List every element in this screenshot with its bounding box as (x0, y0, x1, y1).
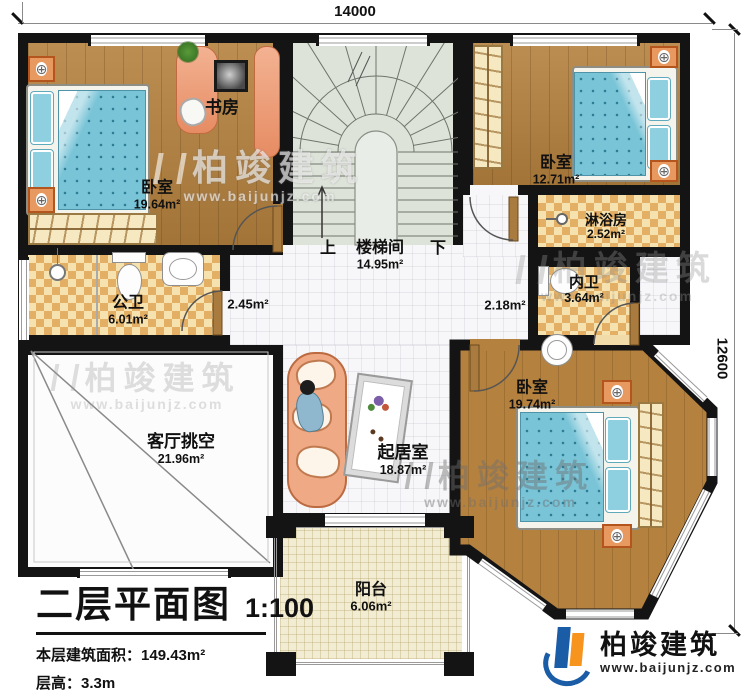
pillow (31, 92, 53, 144)
pillow (606, 418, 630, 462)
room-area: 18.87m² (378, 463, 429, 477)
room-name: 书房 (205, 98, 239, 118)
room-area: 2.52m² (585, 228, 627, 242)
room-label-inner-bath: 内卫3.64m² (564, 274, 604, 306)
room-label-stair-down: 下 (430, 240, 446, 258)
room-area: 3.64m² (564, 291, 604, 305)
room-label-public-bath: 公卫6.01m² (108, 295, 148, 328)
dimension-line-top (18, 23, 712, 24)
room-label-stairwell: 楼梯间14.95m² (356, 240, 404, 273)
nightstand (602, 524, 632, 548)
floor-area-value: 149.43m² (141, 647, 205, 664)
wardrobe (28, 213, 158, 245)
toilet-tank (538, 266, 549, 296)
balcony-post (444, 516, 474, 538)
room-label-study: 书房 (205, 98, 239, 118)
floor-area-label: 本层建筑面积： (36, 647, 141, 664)
bed-mattress (574, 72, 646, 176)
plan-title: 二层平面图 (36, 574, 231, 628)
plan-scale: 1:100 (245, 593, 314, 624)
window (19, 257, 29, 343)
hallway-upper-right-floor (463, 195, 528, 257)
balcony-door-window (322, 514, 428, 526)
pillow (606, 468, 630, 512)
partition-line (96, 255, 98, 335)
window (316, 35, 430, 46)
dimension-value-top: 14000 (300, 3, 410, 20)
title-underline (36, 632, 266, 635)
balcony-post (444, 652, 474, 676)
nightstand (650, 160, 678, 182)
room-area: 6.01m² (108, 313, 148, 327)
room-label-void: 客厅挑空21.96m² (147, 432, 215, 466)
dimension-line-right (734, 33, 735, 633)
company-logo-icon (543, 626, 591, 680)
stair-down-label: 下 (430, 240, 446, 258)
company-logo: 柏竣建筑 www.baijunjz.com (543, 626, 736, 680)
room-label-shower: 淋浴房2.52m² (585, 212, 627, 242)
room-name: 客厅挑空 (147, 432, 215, 452)
room-name: 公卫 (108, 295, 148, 313)
room-name: 卧室 (509, 380, 556, 398)
room-label-living: 起居室18.87m² (378, 443, 429, 477)
room-area: 19.64m² (134, 198, 181, 212)
stair-up-label: 上 (320, 240, 336, 258)
floor-plan: 书房 卧室19.64m² 卧室12.71m² 上 楼梯间14.95m² 下 淋浴… (0, 0, 750, 696)
room-label-bedroom3: 卧室19.74m² (509, 380, 556, 413)
room-name: 楼梯间 (356, 240, 404, 258)
dimension-extension (712, 29, 738, 30)
nightstand (602, 380, 632, 404)
computer-monitor-icon (214, 60, 248, 92)
room-label-balcony: 阳台6.06m² (350, 581, 391, 614)
study-rug-side (254, 46, 280, 158)
room-area: 2.45m² (227, 298, 268, 313)
title-block: 二层平面图 1:100 本层建筑面积：149.43m² 层高：3.3m (36, 574, 314, 696)
hall-area-right: 2.18m² (484, 299, 525, 314)
sink (541, 334, 573, 366)
room-area: 6.06m² (350, 600, 391, 615)
toilet-tank (112, 252, 146, 263)
room-name: 起居室 (378, 443, 429, 463)
floor-height-label: 层高： (36, 675, 81, 692)
nightstand (28, 56, 55, 82)
room-name: 卧室 (533, 155, 580, 173)
room-label-bedroom1: 卧室19.64m² (134, 180, 181, 213)
company-website: www.baijunjz.com (600, 660, 736, 675)
room-area: 12.71m² (533, 173, 580, 187)
dimension-extension (22, 2, 23, 23)
room-area: 2.18m² (484, 299, 525, 314)
room-stairwell (283, 33, 463, 245)
room-area: 19.74m² (509, 398, 556, 412)
pillow (648, 78, 670, 120)
person-head (300, 380, 315, 395)
closet (638, 402, 664, 528)
balcony-post (266, 516, 296, 538)
room-name: 内卫 (564, 274, 604, 291)
room-area: 21.96m² (147, 452, 215, 466)
dimension-value-right: 12600 (714, 329, 731, 389)
room-label-stair-up: 上 (320, 240, 336, 258)
bed-mattress (520, 412, 604, 522)
pendant-lamp-icon (49, 264, 66, 281)
closet (473, 45, 503, 169)
room-closet-nook (640, 257, 690, 345)
room-name: 阳台 (350, 581, 391, 599)
sink (162, 252, 204, 286)
window (510, 35, 640, 46)
nightstand (28, 187, 55, 213)
hall-area-left: 2.45m² (227, 298, 268, 313)
room-area: 14.95m² (356, 258, 404, 272)
floor-height-value: 3.3m (81, 675, 115, 692)
room-label-bedroom2: 卧室12.71m² (533, 155, 580, 188)
nightstand (650, 46, 678, 68)
company-name: 柏竣建筑 (600, 631, 736, 659)
room-name: 卧室 (134, 180, 181, 198)
plant-icon (178, 42, 198, 62)
room-name: 淋浴房 (585, 212, 627, 228)
